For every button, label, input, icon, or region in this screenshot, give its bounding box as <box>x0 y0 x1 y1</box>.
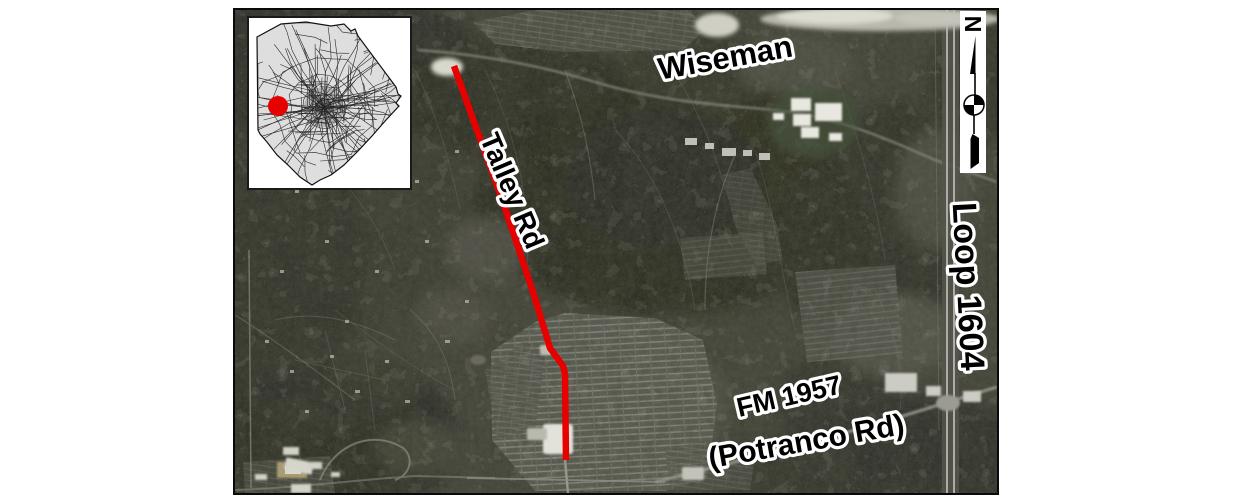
svg-text:N: N <box>960 16 986 33</box>
